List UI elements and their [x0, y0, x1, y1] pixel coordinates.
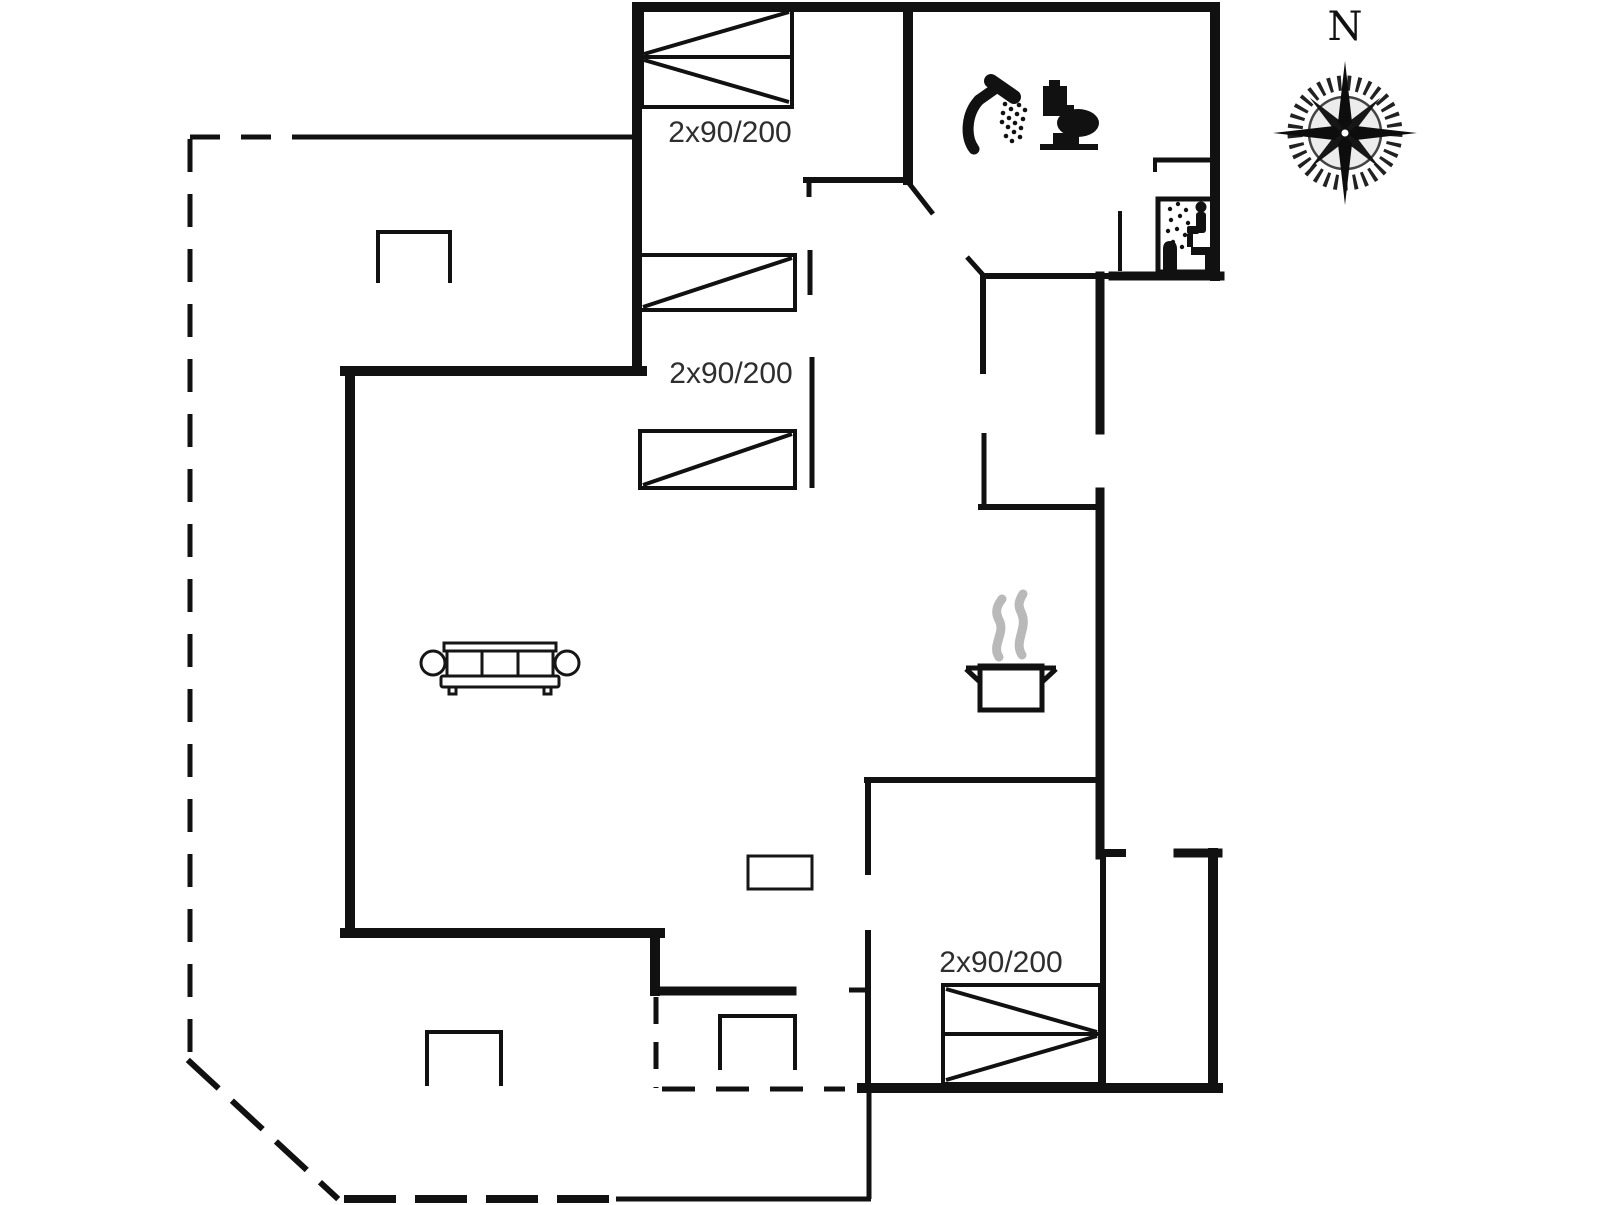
- single-bed-icon-lower: [640, 431, 795, 488]
- sauna-icon: [1158, 199, 1215, 272]
- sauna-person-icon: [1187, 202, 1213, 272]
- walls-exterior: [345, 7, 1220, 1088]
- floor-plan-canvas: N 2x90/200 2x90/200 2x90/200: [0, 0, 1606, 1205]
- door-swings: [908, 182, 984, 276]
- sofa-icon: [421, 643, 579, 694]
- bed-size-label-3: 2x90/200: [939, 946, 1062, 979]
- door-swing-icon: [908, 182, 933, 214]
- floor-plan-page: N 2x90/200 2x90/200 2x90/200: [0, 0, 1606, 1205]
- compass-rose-icon: [1273, 61, 1417, 205]
- terrace-solid-edges: [303, 137, 871, 1199]
- bed-size-label-1: 2x90/200: [668, 116, 791, 149]
- steam-icon: [1019, 594, 1023, 655]
- door-swing-icon: [967, 257, 984, 276]
- double-bed-icon-top: [642, 9, 792, 107]
- bed-size-label-2: 2x90/200: [669, 357, 792, 390]
- single-bed-icon-upper: [640, 255, 795, 310]
- double-bed-icon-bottom: [943, 985, 1100, 1084]
- shower-icon: [968, 81, 1027, 149]
- toilet-icon: [1040, 80, 1099, 150]
- wood-stove-icon: [748, 856, 812, 889]
- steam-icon: [997, 599, 1002, 657]
- cooking-pot-icon: [966, 594, 1056, 710]
- compass-north-label: N: [1328, 4, 1363, 50]
